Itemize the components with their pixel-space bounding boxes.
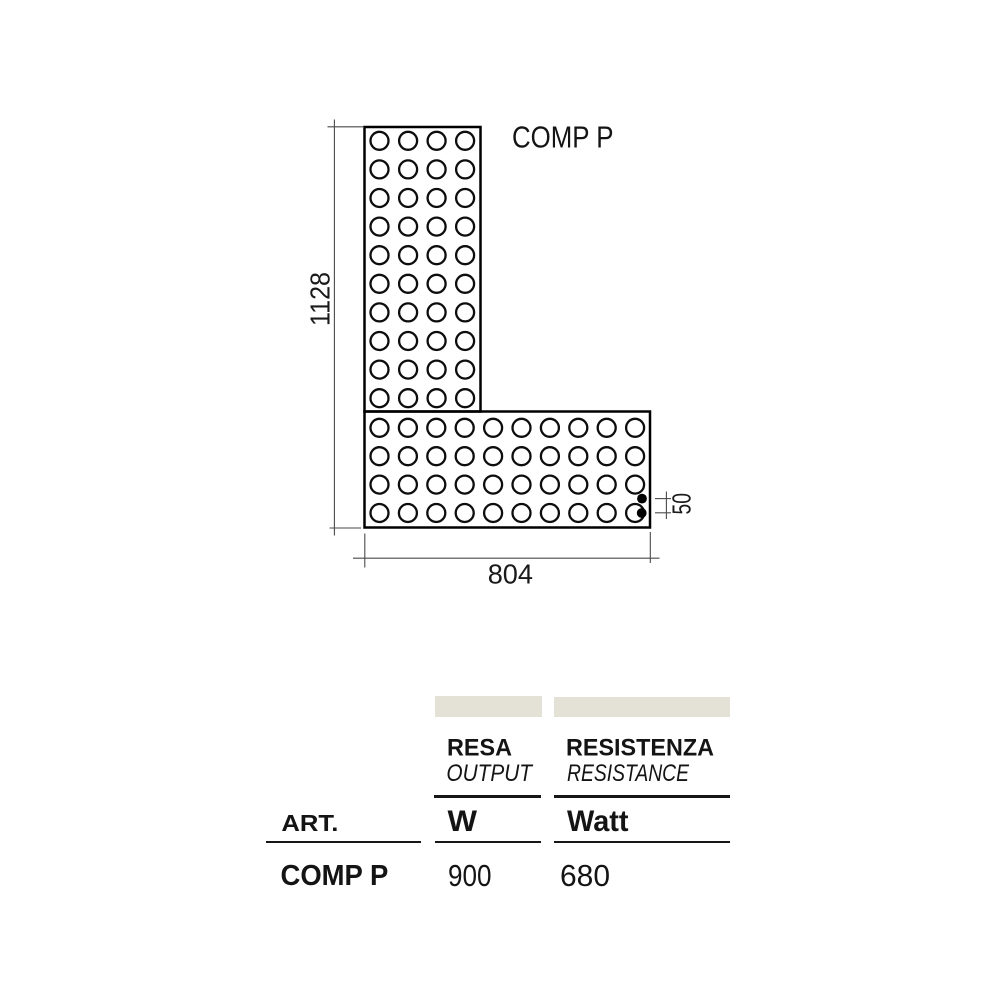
svg-text:W: W	[448, 805, 478, 838]
svg-text:COMP P: COMP P	[512, 120, 614, 154]
svg-text:RESA: RESA	[447, 734, 512, 761]
svg-text:RESISTENZA: RESISTENZA	[566, 734, 714, 761]
svg-text:1128: 1128	[304, 272, 335, 326]
svg-text:804: 804	[488, 559, 533, 590]
svg-text:900: 900	[448, 859, 492, 893]
svg-text:Watt: Watt	[567, 805, 629, 838]
svg-text:OUTPUT: OUTPUT	[446, 760, 534, 787]
svg-text:COMP P: COMP P	[281, 860, 389, 892]
svg-text:RESISTANCE: RESISTANCE	[567, 760, 690, 787]
svg-text:ART.: ART.	[281, 810, 338, 836]
svg-text:680: 680	[560, 859, 610, 893]
svg-text:50: 50	[667, 493, 697, 515]
